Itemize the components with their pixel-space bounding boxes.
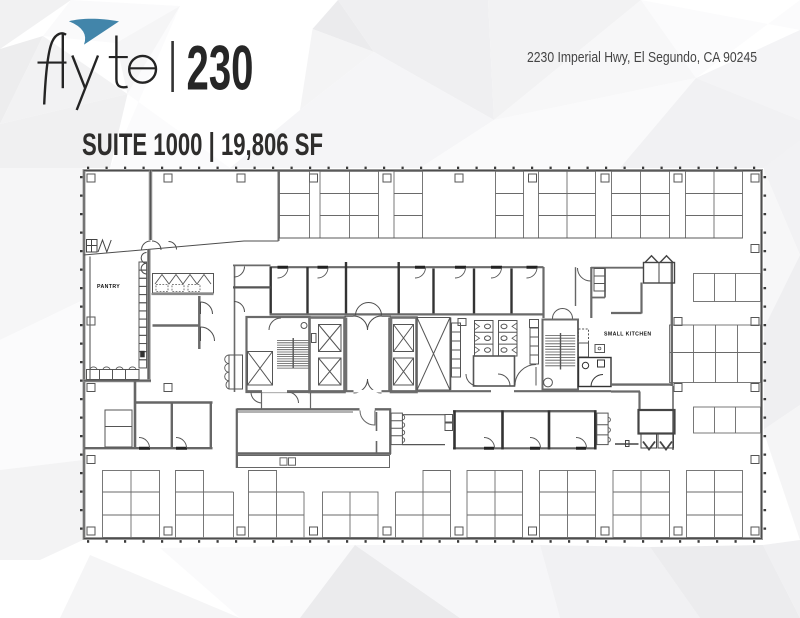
svg-text:SMALL KITCHEN: SMALL KITCHEN bbox=[604, 332, 651, 338]
svg-text:2230 Imperial Hwy, El Segundo,: 2230 Imperial Hwy, El Segundo, CA 90245 bbox=[527, 49, 757, 66]
svg-text:PANTRY: PANTRY bbox=[97, 284, 120, 290]
svg-text:SUITE 1000 | 19,806 SF: SUITE 1000 | 19,806 SF bbox=[82, 126, 323, 162]
svg-text:230: 230 bbox=[187, 34, 254, 104]
